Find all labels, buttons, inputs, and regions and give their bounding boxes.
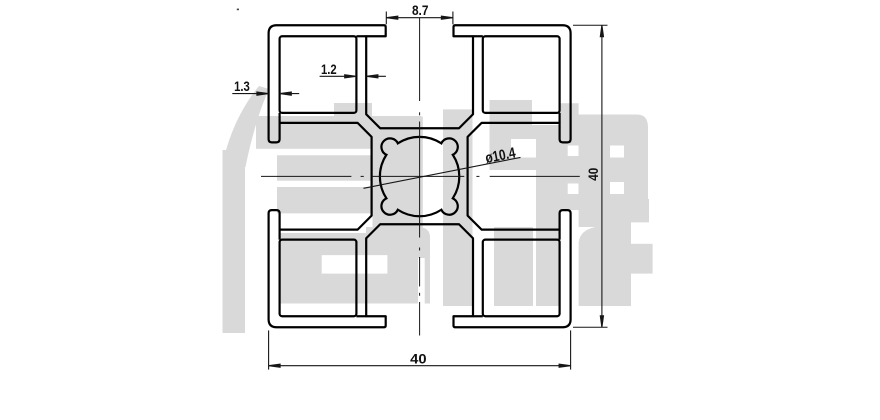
svg-text:1.3: 1.3 [234, 78, 250, 94]
svg-text:40: 40 [585, 168, 601, 181]
svg-text:1.2: 1.2 [321, 61, 337, 77]
svg-text:8.7: 8.7 [412, 2, 429, 18]
svg-text:40: 40 [410, 351, 427, 367]
